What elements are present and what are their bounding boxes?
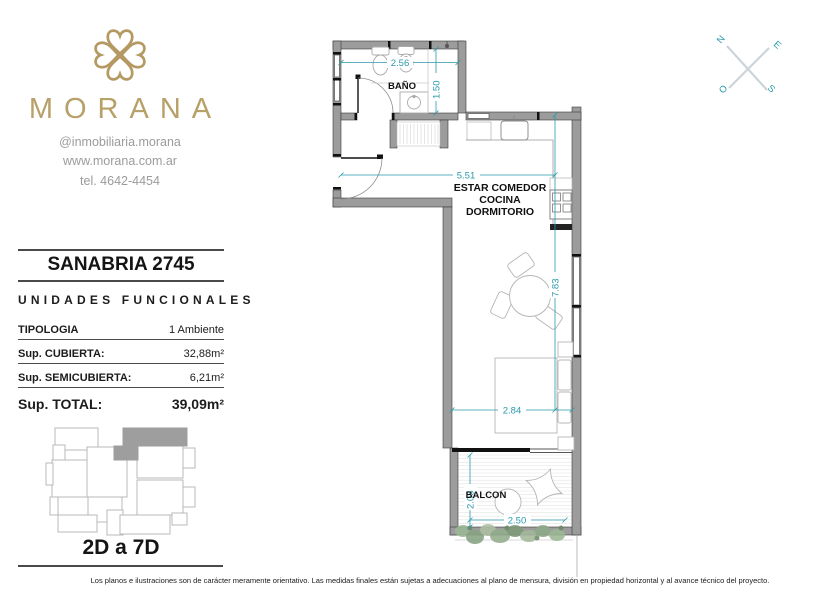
planter-plants <box>455 524 577 577</box>
dim-balcony-width: 2.50 <box>508 516 527 527</box>
brand-block: MORANA @inmobiliaria.morana www.morana.c… <box>0 26 240 191</box>
bathroom-label: BAÑO <box>388 81 416 92</box>
table-row-total: Sup. TOTAL: 39,09m² <box>18 388 224 415</box>
nightstand-icon <box>558 342 573 357</box>
spec-value: 39,09m² <box>172 396 224 412</box>
panel-subtitle: UNIDADES FUNCIONALES <box>18 293 224 307</box>
table-row: Sup. SEMICUBIERTA: 6,21m² <box>18 364 224 388</box>
brand-website: www.morana.com.ar <box>0 152 240 171</box>
building-key-plan <box>42 424 200 536</box>
round-table-icon <box>510 276 551 317</box>
compass-north: N <box>715 33 728 45</box>
table-row: Sup. CUBIERTA: 32,88m² <box>18 340 224 364</box>
compass-rose-icon: N E O S <box>703 28 803 123</box>
dim-bed-width: 2.84 <box>503 406 522 417</box>
divider <box>18 280 224 282</box>
clover-logo-icon <box>91 26 149 84</box>
table-row: TIPOLOGIA 1 Ambiente <box>18 316 224 340</box>
lounge-chair-icon <box>520 463 569 512</box>
unit-info-panel: SANABRIA 2745 UNIDADES FUNCIONALES TIPOL… <box>18 249 224 415</box>
pillow-icon <box>558 360 571 390</box>
balcony-label: BALCON <box>466 490 507 501</box>
spec-label: Sup. CUBIERTA: <box>18 348 105 360</box>
living-label-line1: ESTAR COMEDOR <box>454 182 547 194</box>
brand-contact: @inmobiliaria.morana www.morana.com.ar t… <box>0 133 240 191</box>
kitchen-sink-icon <box>501 121 528 140</box>
spec-table: TIPOLOGIA 1 Ambiente Sup. CUBIERTA: 32,8… <box>18 316 224 415</box>
entry-door <box>341 155 383 200</box>
spec-label: Sup. TOTAL: <box>18 396 102 412</box>
dim-living-length: 7.83 <box>551 279 562 298</box>
chair-icon <box>507 252 536 279</box>
flyer-page: MORANA @inmobiliaria.morana www.morana.c… <box>0 0 828 612</box>
closet <box>397 122 440 146</box>
compass-south: S <box>765 83 777 96</box>
bidet-icon <box>398 47 414 55</box>
units-range-label: 2D a 7D <box>18 536 224 560</box>
balcony-furniture <box>495 463 568 515</box>
dim-bath-depth: 1.50 <box>432 81 443 100</box>
project-address-title: SANABRIA 2745 <box>18 251 224 280</box>
spec-value: 6,21m² <box>190 372 224 384</box>
brand-instagram: @inmobiliaria.morana <box>0 133 240 152</box>
dim-bath-width: 2.56 <box>391 58 410 69</box>
brand-name: MORANA <box>0 93 240 126</box>
balcony-door <box>452 448 572 453</box>
compass-east: E <box>771 39 783 51</box>
dim-living-width: 5.51 <box>457 171 476 182</box>
spec-label: TIPOLOGIA <box>18 324 79 336</box>
divider <box>18 565 223 567</box>
toilet-icon <box>372 47 389 55</box>
living-label-line2: COCINA <box>479 194 521 206</box>
living-label-line3: DORMITORIO <box>466 206 534 218</box>
spec-label: Sup. SEMICUBIERTA: <box>18 372 131 384</box>
bed-icon <box>495 358 557 433</box>
spec-value: 1 Ambiente <box>169 324 224 336</box>
stove-icon <box>550 190 572 219</box>
disclaimer-text: Los planos e ilustraciones son de caráct… <box>60 576 800 585</box>
spec-value: 32,88m² <box>184 348 224 360</box>
pillow-icon <box>558 392 571 423</box>
bed-group <box>495 342 574 450</box>
floor-plan: 2.56 1.50 5.51 7.83 2.84 2.08 2.50 BAÑO … <box>325 28 610 580</box>
brand-phone: tel. 4642-4454 <box>0 172 240 191</box>
compass-west: O <box>717 83 730 96</box>
nightstand-icon <box>558 437 574 450</box>
